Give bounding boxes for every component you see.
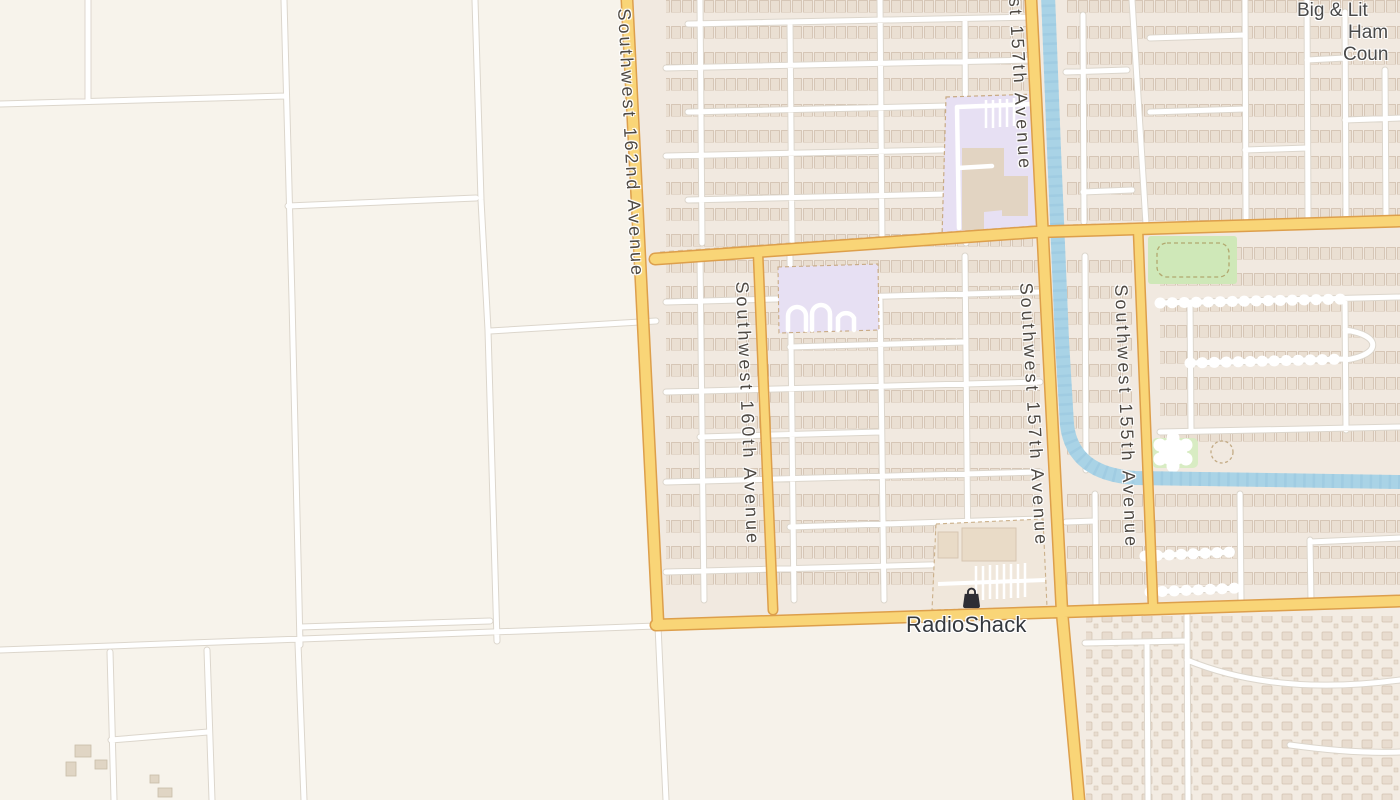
corner-place-label-line2: Ham bbox=[1348, 22, 1388, 44]
corner-place-label-line3: Coun bbox=[1343, 44, 1388, 66]
map-tiles bbox=[0, 0, 1400, 800]
lavender-parcel bbox=[778, 264, 879, 333]
shopping-plaza bbox=[932, 519, 1047, 610]
school-campus bbox=[942, 94, 1041, 237]
poi-label-radioshack[interactable]: RadioShack bbox=[906, 612, 1027, 638]
shopping-bag-icon[interactable] bbox=[959, 585, 984, 610]
map-canvas[interactable]: Southwest 162nd Avenue st 157th Avenue S… bbox=[0, 0, 1400, 800]
park-green bbox=[1148, 236, 1237, 284]
corner-place-label-line1: Big & Lit bbox=[1297, 0, 1368, 22]
